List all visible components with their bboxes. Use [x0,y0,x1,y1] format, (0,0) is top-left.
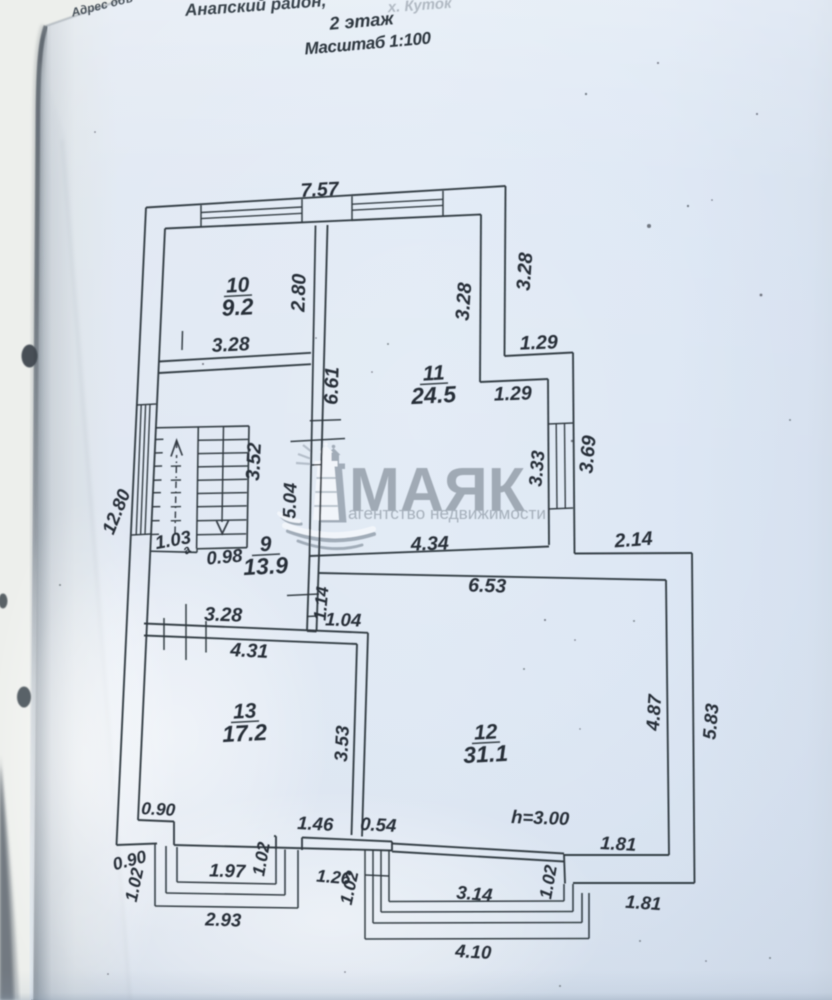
svg-text:3.53: 3.53 [330,724,353,762]
svg-text:3.28: 3.28 [452,282,477,322]
svg-text:0.98: 0.98 [206,544,244,568]
svg-text:2.80: 2.80 [287,273,310,313]
svg-text:0.90: 0.90 [141,798,176,820]
svg-text:6.61: 6.61 [320,366,343,405]
svg-text:1.04: 1.04 [325,608,362,630]
svg-text:h=3.00: h=3.00 [511,806,571,829]
svg-text:3.52: 3.52 [242,442,266,481]
svg-text:1.81: 1.81 [600,832,637,855]
svg-text:5.04: 5.04 [278,482,300,519]
svg-text:1.29: 1.29 [519,331,558,354]
svg-text:3.28: 3.28 [513,252,538,292]
svg-text:4.10: 4.10 [454,940,493,963]
svg-text:3.28: 3.28 [211,333,250,357]
svg-text:17.2: 17.2 [222,719,268,747]
svg-text:агентство недвижимости: агентство недвижимости [348,505,546,523]
svg-text:7.57: 7.57 [300,178,340,202]
svg-text:1.81: 1.81 [625,891,662,914]
svg-text:3.69: 3.69 [575,434,600,474]
svg-text:13.9: 13.9 [243,552,289,580]
svg-text:6.53: 6.53 [468,574,507,597]
svg-text:3.14: 3.14 [456,881,494,905]
svg-text:1.29: 1.29 [493,382,532,405]
svg-text:1.97: 1.97 [209,859,247,881]
svg-text:2.14: 2.14 [613,528,654,553]
svg-text:0.54: 0.54 [360,813,397,836]
svg-text:1.46: 1.46 [297,812,335,835]
svg-text:24.5: 24.5 [410,381,458,409]
svg-text:4.87: 4.87 [642,692,666,732]
svg-text:9.2: 9.2 [221,293,254,321]
svg-text:3.33: 3.33 [524,449,548,487]
svg-text:4.34: 4.34 [409,532,449,555]
svg-text:4.31: 4.31 [229,639,269,663]
svg-text:5.83: 5.83 [698,702,722,740]
svg-text:3.28: 3.28 [204,603,243,626]
svg-text:2.93: 2.93 [204,908,242,930]
svg-text:31.1: 31.1 [463,740,509,768]
